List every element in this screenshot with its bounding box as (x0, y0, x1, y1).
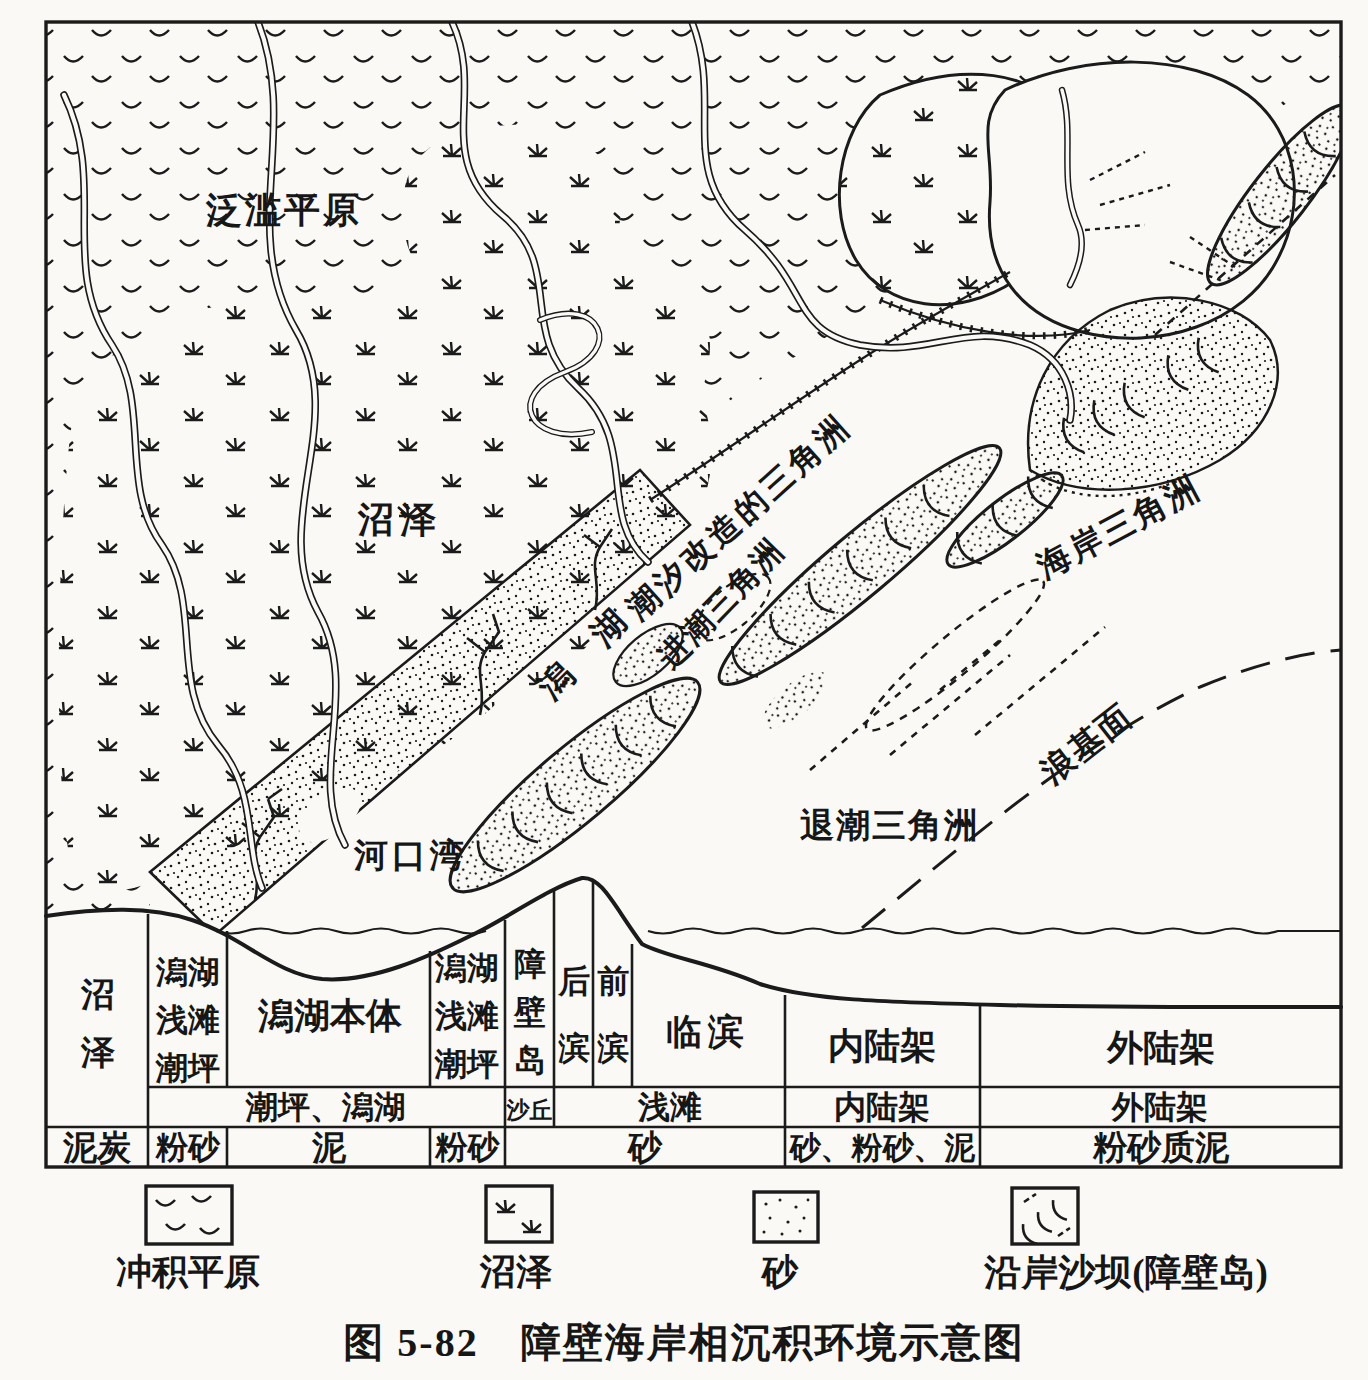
env-cell-lagoon-shoal-tidal-flat-1: 潟湖浅滩潮坪 (150, 948, 226, 1092)
legend-symbol-alluvial-plain (146, 1186, 232, 1244)
map-label-estuary: 河口湾 (354, 836, 468, 875)
subenv-cell-tidal-flat-lagoon: 潮坪、潟湖 (170, 1089, 482, 1126)
sediment-cell-peat: 泥炭 (48, 1128, 146, 1167)
sediment-cell-silty-mud: 粉砂质泥 (982, 1128, 1340, 1167)
sediment-cell-sand: 砂 (506, 1128, 784, 1167)
legend-symbol-shore-bar (1012, 1188, 1078, 1247)
env-cell-barrier-island: 障壁岛 (512, 940, 548, 1084)
legend-label-shore-bar: 沿岸沙坝(障壁岛) (926, 1252, 1326, 1295)
env-cell-outer-shelf: 外陆架 (1088, 1028, 1234, 1069)
map-label-swamp: 沼泽 (358, 500, 442, 541)
sediment-cell-mud: 泥 (230, 1128, 428, 1167)
map-label-ebb-tidal-delta: 退潮三角洲 (800, 806, 980, 845)
sediment-cell-silt-1: 粉砂 (150, 1129, 226, 1166)
env-cell-backshore: 后滨 (557, 948, 592, 1082)
env-cell-lagoon-proper: 潟湖本体 (235, 996, 425, 1037)
legend-label-alluvial-plain: 冲积平原 (108, 1252, 268, 1293)
legend-symbols (146, 1186, 1078, 1247)
env-cell-swamp: 沼泽 (72, 966, 124, 1082)
sediment-cell-silt-2: 粉砂 (431, 1129, 504, 1166)
legend-label-swamp: 沼泽 (456, 1252, 576, 1293)
figure-page: 泛滥平原 沼泽 河口湾 退潮三角洲 潟 湖 潮汐改造的三角洲 进潮三角洲 海岸三… (0, 0, 1368, 1380)
env-cell-foreshore: 前滨 (596, 948, 631, 1082)
subenv-cell-inner-shelf: 内陆架 (812, 1089, 952, 1126)
legend-label-sand: 砂 (740, 1252, 820, 1293)
map-label-flood-plain: 泛滥平原 (206, 190, 362, 231)
subenv-cell-dune: 沙丘 (505, 1098, 554, 1124)
subenv-cell-shoal: 浅滩 (600, 1089, 740, 1126)
legend-symbol-swamp (486, 1186, 552, 1242)
env-cell-shoreface: 临滨 (640, 1012, 776, 1053)
sediment-cell-sand-silt-mud: 砂、粉砂、泥 (786, 1130, 979, 1166)
legend-symbol-sand (754, 1192, 818, 1242)
env-cell-inner-shelf: 内陆架 (810, 1026, 954, 1067)
figure-caption: 图 5-82 障壁海岸相沉积环境示意图 (284, 1320, 1084, 1366)
subenv-cell-outer-shelf: 外陆架 (1090, 1089, 1230, 1126)
env-cell-lagoon-shoal-tidal-flat-2: 潟湖浅滩潮坪 (430, 944, 504, 1088)
